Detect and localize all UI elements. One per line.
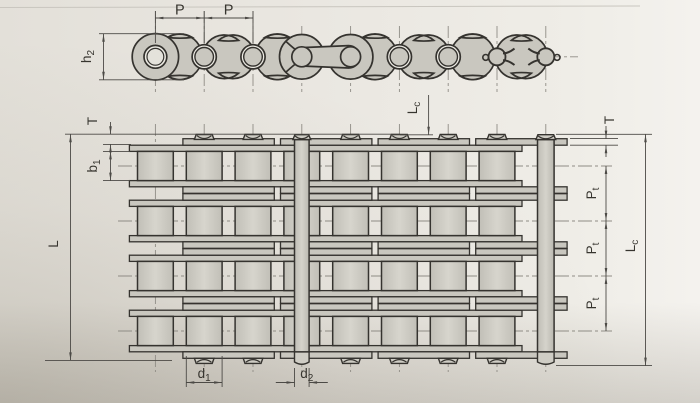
svg-text:T: T xyxy=(85,117,100,125)
svg-text:P: P xyxy=(224,3,234,19)
svg-text:L: L xyxy=(46,240,61,248)
svg-text:T: T xyxy=(602,116,617,124)
svg-text:P: P xyxy=(175,3,185,19)
